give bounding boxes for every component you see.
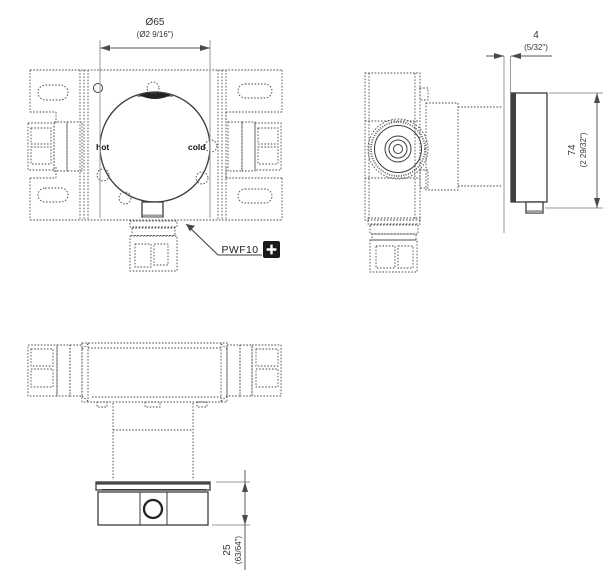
hot-inlet-fitting xyxy=(28,122,82,171)
handle-profile xyxy=(511,93,547,202)
control-dial: hot cold xyxy=(94,82,218,218)
hot-inlet-fitting-bottom xyxy=(28,345,82,396)
product-code-callout: PWF10 xyxy=(186,224,280,258)
dim-depth-imperial: (63/64") xyxy=(234,536,243,565)
faceplate-bottom xyxy=(96,482,210,490)
bottom-view: 25 (63/64") xyxy=(28,343,281,570)
inlet-fitting-end xyxy=(368,119,428,179)
slot-top-left xyxy=(38,85,68,100)
front-view: hot cold Ø65 (Ø2 9/16") PWF10 xyxy=(28,17,282,271)
valve-stem-hidden xyxy=(113,403,193,480)
hot-label: hot xyxy=(96,142,109,152)
dim-plate-imperial: (5/32") xyxy=(524,43,548,52)
cold-inlet-fitting xyxy=(228,122,281,171)
dim-height-metric: 74 xyxy=(567,144,578,156)
dim-height: 74 (2 29/32") xyxy=(545,93,603,208)
dim-plate-thickness: 4 (5/32") xyxy=(486,30,552,59)
leader-arrowhead xyxy=(186,224,195,231)
tab-shadow xyxy=(143,215,162,218)
dim-plate-metric: 4 xyxy=(533,30,539,41)
screw-hole xyxy=(94,84,103,93)
product-link-badge[interactable] xyxy=(263,241,280,258)
dim-diameter-imperial: (Ø2 9/16") xyxy=(137,30,174,39)
slot-bottom-left xyxy=(38,188,68,202)
outlet-connector-side xyxy=(368,218,420,272)
slot-bottom-right xyxy=(238,189,272,203)
valve-body-side xyxy=(365,73,502,272)
side-view: 4 (5/32") 74 (2 29/32") xyxy=(365,30,603,272)
slot-top-right xyxy=(238,84,272,98)
dim-diameter-metric: Ø65 xyxy=(146,17,165,28)
dim-height-imperial: (2 29/32") xyxy=(579,132,588,167)
technical-drawing-sheet: hot cold Ø65 (Ø2 9/16") PWF10 xyxy=(0,0,615,584)
dim-depth: 25 (63/64") xyxy=(212,470,250,570)
cold-label: cold xyxy=(188,142,205,152)
faceplate-edge xyxy=(511,93,516,202)
valve-body-bottom xyxy=(82,343,227,407)
cold-inlet-fitting-bottom xyxy=(227,345,281,396)
product-code: PWF10 xyxy=(221,244,258,256)
outlet-connector xyxy=(130,221,177,271)
wall-and-handle xyxy=(504,56,547,233)
dim-depth-metric: 25 xyxy=(222,544,233,556)
handle-bottom xyxy=(98,492,208,525)
